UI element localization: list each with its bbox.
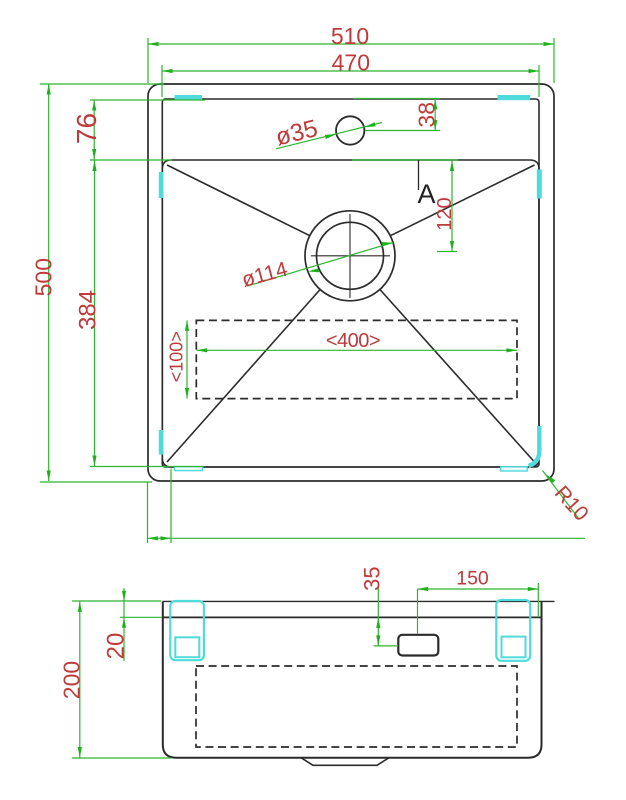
svg-text:120: 120 (434, 197, 456, 230)
svg-text:76: 76 (71, 113, 102, 144)
svg-text:38: 38 (414, 102, 440, 128)
svg-text:150: 150 (456, 567, 489, 589)
svg-text:384: 384 (75, 290, 102, 330)
svg-text:200: 200 (59, 661, 85, 699)
svg-text:470: 470 (332, 49, 370, 75)
svg-text:500: 500 (31, 258, 57, 296)
svg-text:20: 20 (103, 633, 130, 660)
svg-text:A: A (417, 179, 435, 209)
svg-text:<400>: <400> (326, 330, 380, 352)
svg-text:<100>: <100> (167, 331, 187, 382)
svg-text:510: 510 (331, 23, 369, 49)
svg-text:35: 35 (360, 566, 385, 590)
